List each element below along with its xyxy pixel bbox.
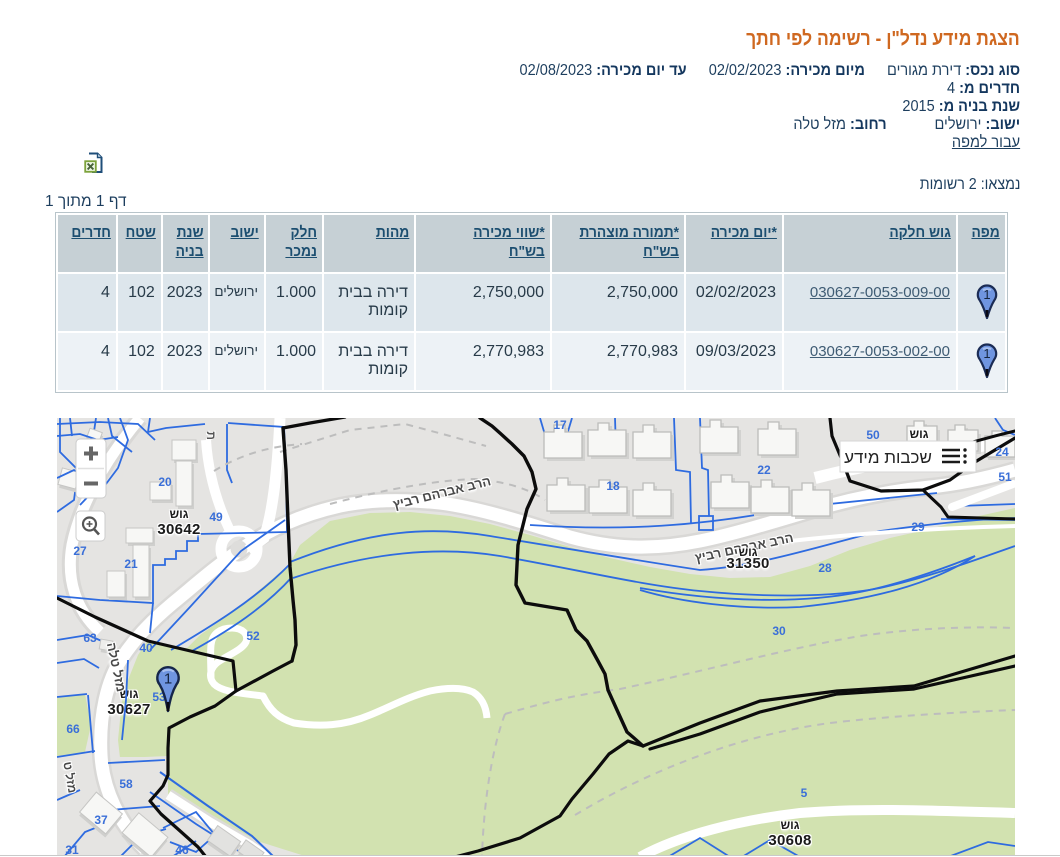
svg-text:1: 1 <box>983 287 990 302</box>
svg-text:63: 63 <box>83 631 97 645</box>
svg-text:52: 52 <box>246 629 260 643</box>
svg-text:גוש: גוש <box>780 818 799 832</box>
svg-text:46: 46 <box>175 843 189 855</box>
svg-text:51: 51 <box>998 470 1012 484</box>
svg-text:30: 30 <box>772 624 786 638</box>
svg-text:30627: 30627 <box>107 701 150 718</box>
svg-text:29: 29 <box>911 520 925 534</box>
svg-text:17: 17 <box>553 418 567 432</box>
svg-text:5: 5 <box>801 786 808 800</box>
svg-text:22: 22 <box>757 463 771 477</box>
svg-text:49: 49 <box>209 510 223 524</box>
svg-text:גוש: גוש <box>909 427 928 441</box>
svg-text:24: 24 <box>995 445 1009 459</box>
svg-text:20: 20 <box>158 475 172 489</box>
svg-text:30642: 30642 <box>157 521 200 538</box>
svg-text:28: 28 <box>818 561 832 575</box>
svg-text:50: 50 <box>866 428 880 442</box>
svg-text:58: 58 <box>119 777 133 791</box>
svg-text:1: 1 <box>983 346 990 361</box>
svg-text:66: 66 <box>66 722 80 736</box>
svg-text:37: 37 <box>94 813 108 827</box>
svg-text:40: 40 <box>139 641 153 655</box>
svg-text:21: 21 <box>124 557 138 571</box>
svg-text:גוש: גוש <box>738 545 757 559</box>
svg-text:30608: 30608 <box>768 832 811 849</box>
svg-text:שכבות מידע: שכבות מידע <box>844 448 932 467</box>
svg-text:1: 1 <box>164 671 172 688</box>
svg-text:ת: ת <box>204 431 218 440</box>
svg-text:גוש: גוש <box>169 507 188 521</box>
svg-text:27: 27 <box>73 544 87 558</box>
svg-text:18: 18 <box>606 479 620 493</box>
svg-text:31: 31 <box>65 843 79 855</box>
